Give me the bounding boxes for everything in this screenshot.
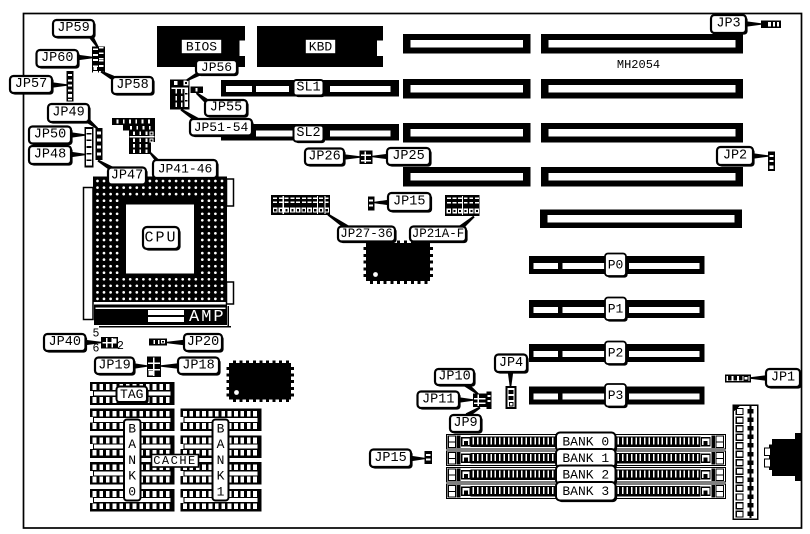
svg-text:JP49: JP49	[52, 106, 84, 121]
svg-text:JP25: JP25	[392, 149, 424, 164]
svg-text:A: A	[128, 437, 136, 452]
svg-text:MH2054: MH2054	[617, 58, 660, 72]
svg-text:JP57: JP57	[15, 77, 47, 92]
svg-text:JP20: JP20	[187, 335, 219, 350]
svg-text:JP50: JP50	[34, 128, 66, 143]
svg-text:JP55: JP55	[210, 101, 242, 116]
svg-text:JP3: JP3	[716, 17, 740, 32]
svg-text:P0: P0	[608, 257, 624, 272]
svg-text:N: N	[217, 453, 225, 468]
svg-text:JP15: JP15	[393, 195, 425, 210]
svg-text:JP26: JP26	[308, 149, 340, 164]
svg-text:JP15: JP15	[374, 451, 406, 466]
svg-text:B: B	[217, 422, 225, 437]
svg-text:JP19: JP19	[98, 358, 130, 373]
svg-text:2: 2	[117, 340, 124, 353]
svg-text:SL2: SL2	[296, 126, 320, 141]
svg-text:P2: P2	[608, 345, 624, 360]
svg-text:SL1: SL1	[296, 80, 320, 95]
svg-text:JP58: JP58	[116, 78, 148, 93]
svg-text:JP60: JP60	[41, 51, 73, 66]
svg-text:JP9: JP9	[453, 416, 477, 431]
svg-text:JP1: JP1	[771, 371, 795, 386]
svg-text:A: A	[217, 437, 225, 452]
svg-text:TAG: TAG	[120, 387, 143, 402]
svg-text:JP47: JP47	[111, 169, 143, 184]
svg-text:BANK 3: BANK 3	[562, 484, 609, 499]
svg-text:K: K	[128, 469, 136, 484]
svg-text:CPU: CPU	[144, 230, 177, 247]
svg-text:K: K	[217, 469, 225, 484]
svg-text:JP4: JP4	[499, 356, 523, 371]
svg-text:JP2: JP2	[723, 149, 747, 164]
svg-text:JP18: JP18	[182, 358, 214, 373]
svg-text:5: 5	[93, 328, 100, 341]
svg-text:JP10: JP10	[438, 370, 470, 385]
svg-text:AMP: AMP	[189, 308, 226, 327]
svg-text:JP21A-F: JP21A-F	[412, 227, 465, 241]
svg-text:BANK 2: BANK 2	[562, 467, 609, 482]
svg-text:CACHE: CACHE	[153, 454, 197, 468]
svg-text:N: N	[128, 453, 136, 468]
svg-text:JP48: JP48	[34, 148, 66, 163]
svg-text:BIOS: BIOS	[186, 39, 217, 54]
svg-text:1: 1	[217, 484, 225, 499]
svg-text:BANK 1: BANK 1	[562, 451, 609, 466]
svg-text:6: 6	[93, 343, 100, 356]
svg-text:BANK 0: BANK 0	[562, 434, 609, 449]
svg-text:JP41-46: JP41-46	[158, 162, 213, 177]
svg-text:B: B	[128, 422, 136, 437]
svg-text:P1: P1	[608, 301, 624, 316]
svg-text:KBD: KBD	[309, 39, 333, 54]
svg-text:JP27-36: JP27-36	[340, 227, 393, 241]
svg-text:P3: P3	[608, 388, 624, 403]
svg-text:JP51-54: JP51-54	[194, 120, 249, 135]
svg-text:JP40: JP40	[49, 335, 81, 350]
svg-text:0: 0	[128, 484, 136, 499]
svg-text:JP11: JP11	[422, 392, 454, 407]
svg-text:JP56: JP56	[201, 60, 232, 75]
svg-text:JP59: JP59	[57, 21, 89, 36]
